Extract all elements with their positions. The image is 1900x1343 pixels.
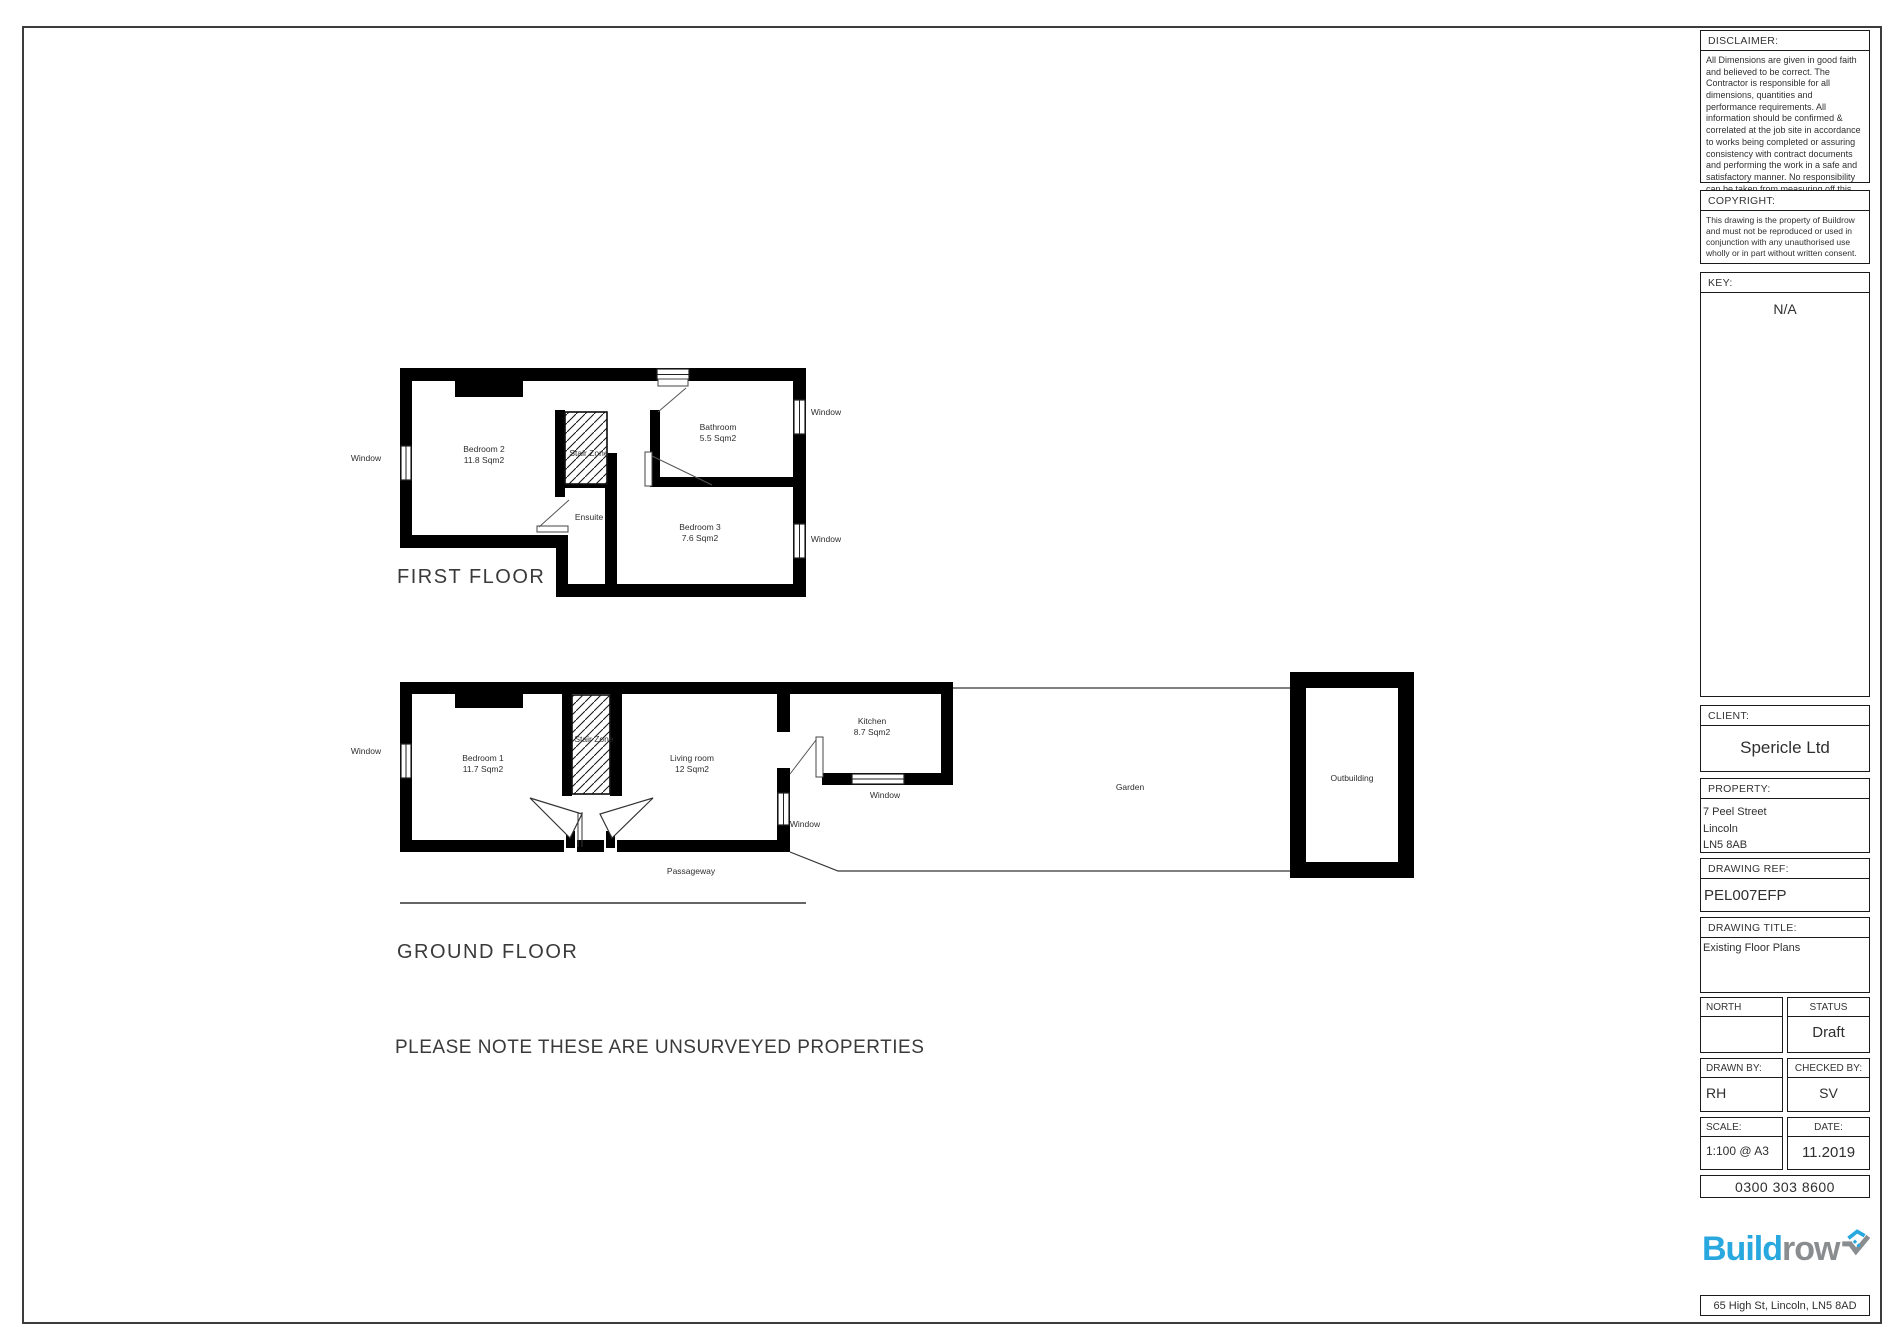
status-label: STATUS: [1788, 998, 1869, 1017]
door-symbol: [790, 737, 823, 777]
passageway-label: Passageway: [667, 866, 715, 877]
scale-box: SCALE: 1:100 @ A3: [1700, 1117, 1783, 1170]
date-label: DATE:: [1788, 1118, 1869, 1137]
window-symbol: [794, 524, 805, 558]
checked-by-label: CHECKED BY:: [1788, 1059, 1869, 1078]
room-label-stair-gf: Stair Zone: [574, 734, 613, 745]
room-label-kitchen: Kitchen 8.7 Sqm2: [854, 716, 890, 739]
disclaimer-text: All Dimensions are given in good faith a…: [1701, 51, 1869, 211]
drawing-ref-value: PEL007EFP: [1701, 879, 1869, 912]
key-value: N/A: [1701, 301, 1869, 317]
drawn-by-label: DRAWN BY:: [1701, 1059, 1782, 1078]
drawn-by-value: RH: [1701, 1078, 1782, 1108]
copyright-label: COPYRIGHT:: [1701, 191, 1869, 211]
scale-label: SCALE:: [1701, 1118, 1782, 1137]
first-floor-plan: [400, 368, 806, 597]
property-label: PROPERTY:: [1701, 779, 1869, 799]
north-value: [1701, 1017, 1782, 1031]
room-label-bathroom: Bathroom 5.5 Sqm2: [700, 422, 737, 445]
drawing-title-section: DRAWING TITLE: Existing Floor Plans: [1700, 917, 1870, 993]
logo-text-row: row: [1782, 1230, 1839, 1268]
ground-floor-plan: [400, 672, 1414, 903]
wall: [941, 682, 953, 785]
wall: [400, 535, 568, 548]
client-label: CLIENT:: [1701, 706, 1869, 726]
wall: [650, 477, 793, 487]
wall: [777, 682, 790, 732]
window-symbol: [401, 744, 411, 778]
logo-text-build: Build: [1702, 1230, 1782, 1268]
title-block: DISCLAIMER: All Dimensions are given in …: [1700, 30, 1872, 1320]
window-symbol: [778, 793, 789, 825]
window-symbol: [657, 369, 689, 380]
property-address: 7 Peel Street Lincoln LN5 8AB: [1701, 799, 1869, 859]
key-label: KEY:: [1701, 273, 1869, 293]
disclaimer-section: DISCLAIMER: All Dimensions are given in …: [1700, 30, 1870, 183]
wall: [400, 682, 953, 694]
wall: [556, 584, 806, 597]
window-label: Window: [811, 534, 841, 545]
north-label: NORTH: [1701, 998, 1782, 1017]
window-label: Window: [870, 790, 900, 801]
chimney-breast: [455, 694, 523, 708]
phone-bar: 0300 303 8600: [1700, 1175, 1870, 1198]
status-box: STATUS Draft: [1787, 997, 1870, 1053]
floor-plan-drawing: [0, 0, 1900, 1343]
drawing-ref-section: DRAWING REF: PEL007EFP: [1700, 858, 1870, 912]
door-symbol: [537, 500, 569, 532]
window-label: Window: [790, 819, 820, 830]
chimney-breast: [455, 381, 523, 397]
status-value: Draft: [1788, 1017, 1869, 1048]
client-value: Spericle Ltd: [1701, 726, 1869, 770]
window-symbol: [794, 400, 805, 434]
ground-floor-title: GROUND FLOOR: [397, 941, 578, 964]
key-section: KEY: N/A: [1700, 272, 1870, 697]
window-label: Window: [811, 407, 841, 418]
buildrow-logo: Buildrow: [1702, 1218, 1870, 1280]
scale-value: 1:100 @ A3: [1701, 1137, 1782, 1165]
drawing-title-label: DRAWING TITLE:: [1701, 918, 1869, 938]
copyright-text: This drawing is the property of Buildrow…: [1701, 211, 1869, 263]
first-floor-title: FIRST FLOOR: [397, 566, 545, 589]
room-label-bedroom2: Bedroom 2 11.8 Sqm2: [463, 444, 505, 467]
garden-label: Garden: [1116, 782, 1144, 793]
window-symbol: [401, 446, 411, 480]
client-section: CLIENT: Spericle Ltd: [1700, 705, 1870, 772]
drawing-ref-label: DRAWING REF:: [1701, 859, 1869, 879]
door-symbol: [658, 379, 688, 412]
buildrow-house-icon: [1841, 1219, 1870, 1265]
outbuilding-label: Outbuilding: [1330, 773, 1373, 784]
date-box: DATE: 11.2019: [1787, 1117, 1870, 1170]
checked-by-box: CHECKED BY: SV: [1787, 1058, 1870, 1112]
window-label: Window: [351, 746, 381, 757]
window-label: Window: [351, 453, 381, 464]
wall: [400, 840, 790, 852]
window-symbol: [852, 774, 904, 784]
checked-by-value: SV: [1788, 1078, 1869, 1108]
wall: [400, 368, 806, 381]
date-value: 11.2019: [1788, 1137, 1869, 1168]
footer-address: 65 High St, Lincoln, LN5 8AD: [1700, 1295, 1870, 1316]
north-box: NORTH: [1700, 997, 1783, 1053]
drawn-by-box: DRAWN BY: RH: [1700, 1058, 1783, 1112]
room-label-bedroom3: Bedroom 3 7.6 Sqm2: [679, 522, 721, 545]
door-swing-arrows: [530, 798, 653, 847]
disclaimer-label: DISCLAIMER:: [1701, 31, 1869, 51]
wall: [562, 694, 572, 796]
room-label-bedroom1: Bedroom 1 11.7 Sqm2: [462, 753, 504, 776]
room-label-stair-ff: Stair Zone: [569, 448, 608, 459]
unsurveyed-note: PLEASE NOTE THESE ARE UNSURVEYED PROPERT…: [395, 1037, 924, 1059]
copyright-section: COPYRIGHT: This drawing is the property …: [1700, 190, 1870, 264]
drawing-sheet: Bedroom 2 11.8 Sqm2 Bathroom 5.5 Sqm2 St…: [0, 0, 1900, 1343]
room-label-living: Living room 12 Sqm2: [670, 753, 714, 776]
property-section: PROPERTY: 7 Peel Street Lincoln LN5 8AB: [1700, 778, 1870, 853]
room-label-ensuite: Ensuite: [575, 512, 603, 523]
drawing-title-value: Existing Floor Plans: [1701, 938, 1869, 958]
